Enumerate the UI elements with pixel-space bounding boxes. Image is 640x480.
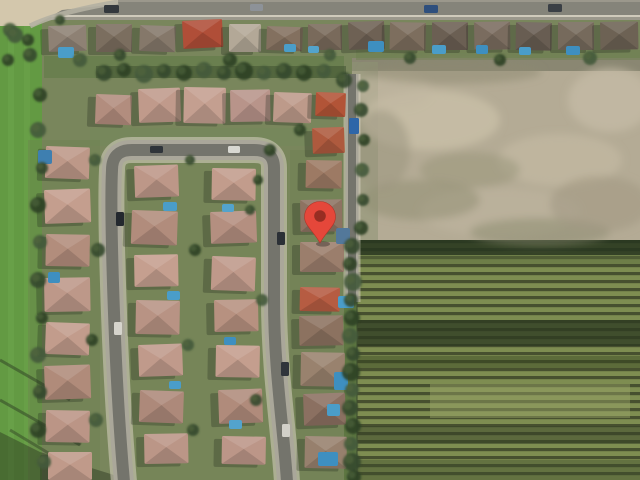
parked-car [349, 118, 359, 134]
parked-car [282, 424, 290, 437]
house-roof [213, 436, 266, 468]
house-roof [221, 24, 261, 55]
swimming-pool [566, 46, 580, 55]
swimming-pool [163, 202, 177, 211]
swimming-pool [476, 45, 488, 54]
house-roof [202, 210, 257, 247]
house-roof [123, 210, 178, 249]
house-roof [126, 254, 179, 290]
house-roof [136, 433, 189, 467]
house-roof [291, 315, 344, 349]
swimming-pool [169, 381, 181, 389]
house-roof [297, 160, 342, 192]
parked-car [277, 232, 285, 245]
satellite-map[interactable] [0, 0, 640, 480]
swimming-pool [318, 452, 338, 466]
parked-car [424, 5, 438, 13]
parked-car [114, 322, 122, 335]
house-roof [466, 21, 511, 53]
swimming-pool [368, 41, 384, 52]
swimming-pool [222, 204, 234, 212]
house-roof [126, 164, 179, 201]
house-roof [130, 88, 181, 127]
parked-car [116, 212, 124, 226]
parked-car [250, 4, 263, 11]
house-roof [87, 94, 132, 129]
house-roof [592, 21, 639, 53]
house-roof [206, 299, 259, 335]
house-roof [292, 242, 344, 275]
house-roof [300, 24, 342, 53]
swimming-pool [48, 272, 60, 283]
parked-car [228, 146, 240, 153]
swimming-pool [38, 150, 52, 164]
house-roof [304, 127, 345, 157]
house-roof [258, 26, 303, 55]
house-roof [292, 287, 340, 315]
swimming-pool [519, 47, 531, 55]
pin-shadow [316, 241, 330, 246]
house-roof [203, 256, 256, 295]
house-roof [175, 87, 226, 127]
house-roof [381, 22, 426, 54]
swimming-pool [432, 45, 446, 54]
house-roof [131, 25, 176, 56]
swimming-pool [58, 47, 74, 58]
swimming-pool [284, 44, 296, 52]
swimming-pool [224, 337, 236, 345]
house-roof [265, 92, 312, 127]
house-roof [88, 24, 132, 55]
house-roof [307, 92, 346, 120]
swimming-pool [167, 291, 180, 300]
parked-car [548, 4, 562, 12]
house-roof [131, 390, 184, 427]
parked-car [150, 146, 163, 153]
pin-inner-circle [314, 210, 326, 222]
map-viewport[interactable] [0, 0, 640, 480]
house-roof [222, 89, 271, 125]
house-roof [127, 300, 180, 338]
house-roof [130, 343, 183, 380]
parked-car [104, 5, 119, 13]
swimming-pool [327, 404, 340, 416]
swimming-pool [229, 420, 242, 429]
swimming-pool [308, 46, 319, 53]
house-roof [207, 345, 260, 381]
parked-car [281, 362, 289, 376]
house-roof [203, 168, 256, 204]
